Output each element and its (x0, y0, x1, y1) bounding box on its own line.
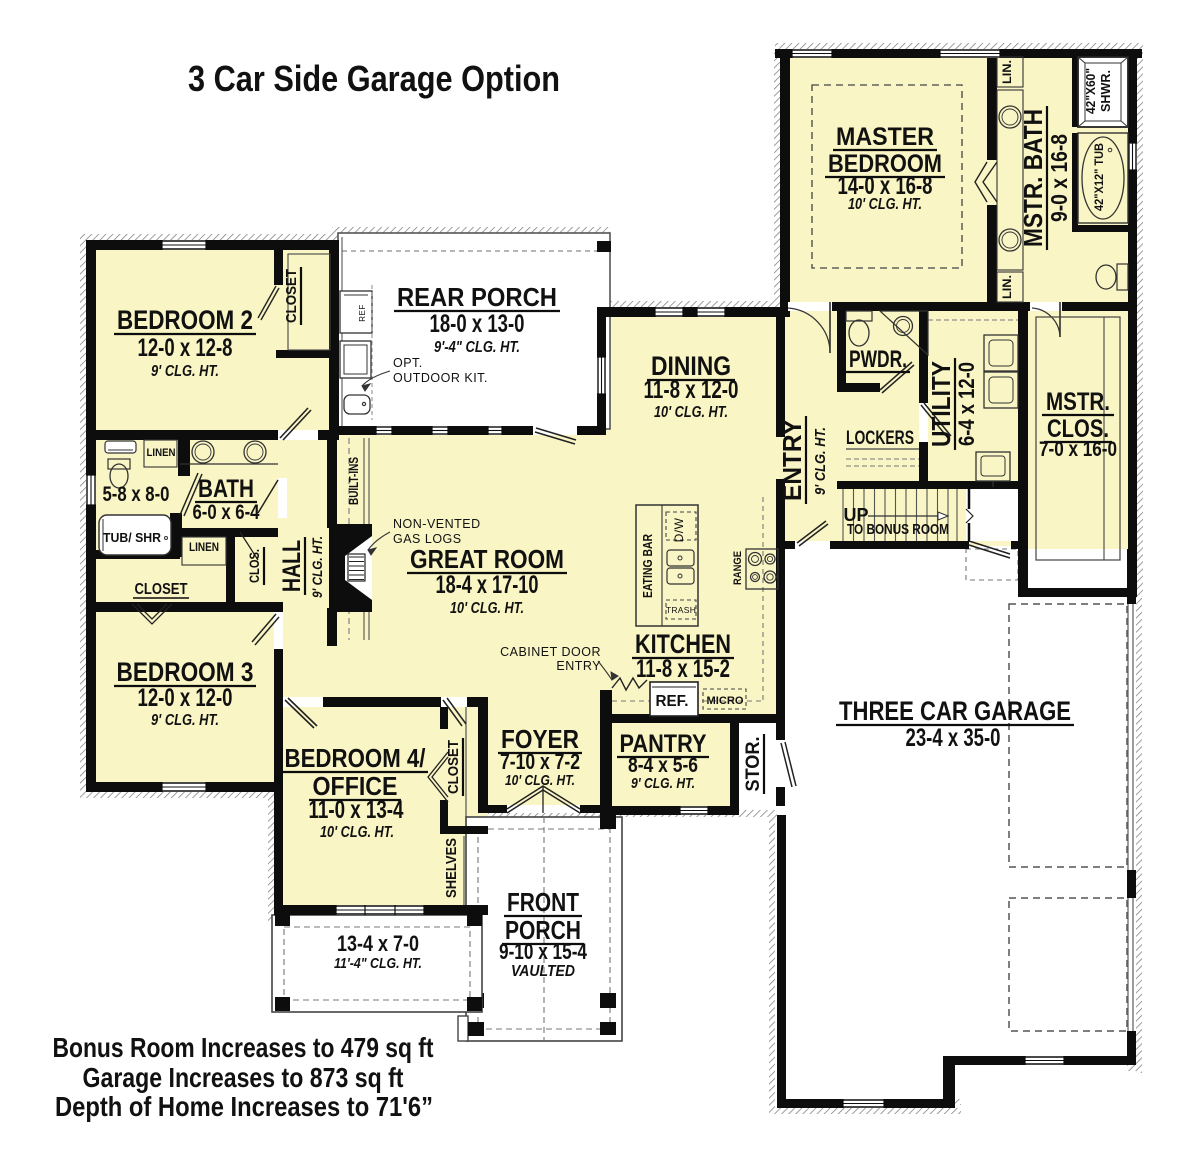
svg-text:TUB/ SHR: TUB/ SHR (103, 530, 162, 545)
svg-text:8-4 x 5-6: 8-4 x 5-6 (628, 754, 698, 777)
svg-text:13-4 x 7-0: 13-4 x 7-0 (337, 931, 419, 956)
svg-text:RANGE: RANGE (732, 551, 744, 585)
svg-text:ENTRY: ENTRY (777, 419, 807, 501)
svg-text:LIN.: LIN. (1000, 275, 1014, 299)
svg-text:TO BONUS ROOM: TO BONUS ROOM (847, 521, 949, 538)
svg-text:BATH: BATH (198, 475, 254, 503)
svg-text:9'-4" CLG. HT.: 9'-4" CLG. HT. (434, 339, 520, 356)
svg-text:Depth of Home Increases to 71': Depth of Home Increases to 71'6” (55, 1091, 433, 1122)
svg-text:9-10 x 15-4: 9-10 x 15-4 (499, 939, 588, 964)
svg-text:CLOSET: CLOSET (445, 740, 462, 794)
svg-text:VAULTED: VAULTED (511, 963, 575, 980)
svg-text:CABINET DOOR: CABINET DOOR (500, 645, 601, 659)
svg-text:THREE CAR GARAGE: THREE CAR GARAGE (839, 696, 1071, 726)
svg-text:Garage Increases to 873 sq ft: Garage Increases to 873 sq ft (83, 1062, 404, 1093)
svg-text:18-4 x 17-10: 18-4 x 17-10 (436, 571, 539, 599)
svg-text:CLOSET: CLOSET (283, 269, 300, 323)
svg-text:BEDROOM 4/: BEDROOM 4/ (285, 743, 426, 773)
svg-text:11'-4" CLG. HT.: 11'-4" CLG. HT. (334, 955, 422, 972)
svg-text:BUILT-INS: BUILT-INS (346, 457, 361, 505)
svg-text:SHELVES: SHELVES (443, 838, 460, 898)
svg-text:9' CLG. HT.: 9' CLG. HT. (812, 427, 829, 495)
svg-text:TRASH: TRASH (666, 605, 696, 615)
svg-text:LOCKERS: LOCKERS (846, 428, 914, 449)
svg-text:9' CLG. HT.: 9' CLG. HT. (151, 712, 219, 729)
svg-text:Bonus Room Increases to 479 sq: Bonus Room Increases to 479 sq ft (53, 1032, 434, 1063)
svg-text:HALL: HALL (278, 540, 306, 592)
svg-text:10' CLG. HT.: 10' CLG. HT. (848, 196, 922, 213)
svg-text:PWDR.: PWDR. (849, 346, 907, 373)
svg-text:OPT.: OPT. (393, 356, 423, 370)
svg-text:SHWR.: SHWR. (1098, 70, 1113, 112)
svg-text:10' CLG. HT.: 10' CLG. HT. (320, 824, 394, 841)
svg-text:12-0 x 12-0: 12-0 x 12-0 (138, 684, 233, 712)
svg-text:10' CLG. HT.: 10' CLG. HT. (654, 404, 728, 421)
svg-text:MSTR.: MSTR. (1046, 388, 1110, 416)
svg-text:NON-VENTED: NON-VENTED (393, 517, 481, 531)
svg-text:11-8 x 15-2: 11-8 x 15-2 (636, 655, 730, 683)
svg-text:10' CLG. HT.: 10' CLG. HT. (505, 772, 575, 789)
svg-text:LINEN: LINEN (189, 542, 219, 554)
svg-text:9' CLG. HT.: 9' CLG. HT. (631, 775, 695, 792)
svg-text:LINEN: LINEN (147, 447, 176, 459)
svg-text:CLOS.: CLOS. (247, 549, 262, 583)
svg-text:REF.: REF. (656, 693, 689, 710)
svg-text:23-4 x 35-0: 23-4 x 35-0 (906, 724, 1001, 752)
svg-text:11-8 x 12-0: 11-8 x 12-0 (644, 376, 739, 404)
svg-text:10' CLG. HT.: 10' CLG. HT. (450, 600, 524, 617)
svg-text:OUTDOOR KIT.: OUTDOOR KIT. (393, 371, 488, 385)
svg-text:12-0 x 12-8: 12-0 x 12-8 (138, 334, 233, 362)
svg-text:7-10 x 7-2: 7-10 x 7-2 (500, 749, 580, 774)
svg-text:STOR.: STOR. (743, 737, 764, 792)
svg-text:BEDROOM 3: BEDROOM 3 (117, 657, 254, 687)
svg-text:9' CLG. HT.: 9' CLG. HT. (151, 363, 219, 380)
svg-text:FRONT: FRONT (507, 887, 579, 917)
svg-text:18-0 x 13-0: 18-0 x 13-0 (430, 310, 525, 338)
svg-text:MSTR. BATH: MSTR. BATH (1018, 109, 1048, 247)
svg-text:42"X12" TUB: 42"X12" TUB (1092, 143, 1106, 211)
svg-text:ENTRY: ENTRY (556, 659, 601, 673)
svg-text:CLOSET: CLOSET (135, 581, 188, 598)
svg-text:UTILITY: UTILITY (926, 361, 956, 447)
svg-text:9' CLG. HT.: 9' CLG. HT. (309, 536, 325, 598)
svg-text:3 Car Side Garage Option: 3 Car Side Garage Option (188, 58, 560, 99)
svg-text:EATING BAR: EATING BAR (640, 534, 655, 598)
svg-text:GREAT ROOM: GREAT ROOM (410, 544, 564, 574)
svg-text:LIN.: LIN. (1000, 60, 1014, 84)
svg-text:D/W: D/W (672, 517, 686, 542)
svg-text:42"X60": 42"X60" (1083, 68, 1098, 114)
svg-text:11-0 x 13-4: 11-0 x 13-4 (309, 796, 404, 824)
svg-text:REF: REF (358, 304, 367, 322)
svg-text:REAR PORCH: REAR PORCH (397, 282, 557, 312)
svg-text:GAS LOGS: GAS LOGS (393, 532, 462, 546)
svg-text:6-0 x 6-4: 6-0 x 6-4 (193, 501, 260, 524)
svg-text:MASTER: MASTER (836, 123, 934, 151)
svg-text:5-8 x 8-0: 5-8 x 8-0 (103, 483, 170, 506)
svg-text:BEDROOM 2: BEDROOM 2 (117, 305, 253, 335)
svg-text:MICRO: MICRO (707, 695, 744, 707)
svg-text:7-0 x 16-0: 7-0 x 16-0 (1039, 438, 1117, 461)
svg-text:6-4 x 12-0: 6-4 x 12-0 (954, 362, 979, 446)
svg-text:9-0 x 16-8: 9-0 x 16-8 (1046, 134, 1072, 222)
